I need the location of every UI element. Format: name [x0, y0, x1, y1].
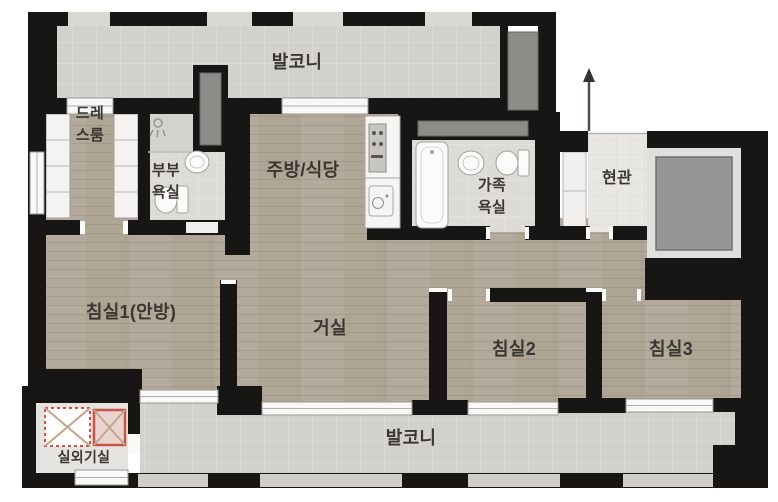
sink-tap: [386, 195, 389, 198]
floor-plan-canvas: [0, 0, 778, 502]
wall: [28, 98, 46, 388]
floor-plan-image: 발코니 드레스룸 부부욕실 주방/식당 가족욕실 현관 침실1(안방) 거실 침…: [0, 0, 778, 502]
balcony-top-floor: [57, 26, 500, 98]
toilet-icon: [496, 150, 529, 176]
washbasin-icon: [185, 151, 209, 173]
wall: [538, 26, 556, 114]
window-gap: [68, 12, 110, 26]
wall: [713, 398, 741, 412]
wall: [128, 386, 140, 434]
washbasin-icon: [458, 151, 484, 175]
window: [30, 152, 44, 214]
window: [75, 470, 128, 485]
wall: [613, 226, 647, 240]
duct-shaft: [508, 32, 538, 110]
master-bath-shower-area: [148, 112, 193, 152]
outdoor-unit-symbols: [45, 408, 125, 446]
wall: [138, 112, 150, 220]
duct-shaft: [418, 121, 528, 136]
wall: [586, 288, 602, 403]
kitchen-counter: [365, 116, 400, 228]
window-gap: [468, 474, 560, 487]
wall: [500, 26, 508, 114]
wall: [128, 220, 237, 235]
ac-unit-dotted-box: [45, 408, 90, 446]
dress-room-floor: [70, 112, 114, 220]
wall: [28, 369, 142, 403]
cooktop-icon: [369, 124, 386, 172]
balcony-door: [140, 390, 218, 403]
window-gap: [425, 12, 472, 26]
window: [282, 98, 368, 114]
window-gap: [138, 474, 208, 487]
window: [468, 402, 558, 415]
wall: [217, 386, 262, 415]
wall: [525, 226, 590, 240]
wall: [647, 131, 768, 148]
wall: [558, 398, 626, 413]
wall: [220, 280, 237, 403]
elevator-shaft: [656, 157, 732, 250]
main-wood-floor: [46, 218, 741, 403]
window-gap: [260, 474, 402, 487]
wall: [412, 400, 468, 415]
entrance-arrow-icon: [583, 68, 647, 134]
window: [262, 402, 412, 415]
wall: [535, 112, 560, 232]
window-gap: [293, 12, 343, 26]
wall: [28, 220, 80, 235]
entrance-floor: [588, 133, 647, 232]
wall: [735, 408, 768, 448]
duct-shaft: [200, 73, 221, 145]
window: [626, 399, 713, 412]
ac-unit-solid-box: [94, 410, 125, 445]
window: [67, 98, 113, 114]
window-gap: [623, 474, 713, 487]
wall: [490, 288, 588, 302]
wall: [560, 131, 588, 152]
wall: [429, 288, 447, 403]
wall: [645, 258, 741, 300]
wall: [741, 148, 768, 408]
bathtub-icon: [416, 142, 448, 228]
window-gap: [207, 12, 252, 26]
wall: [28, 12, 57, 98]
toilet-icon: [155, 186, 188, 213]
